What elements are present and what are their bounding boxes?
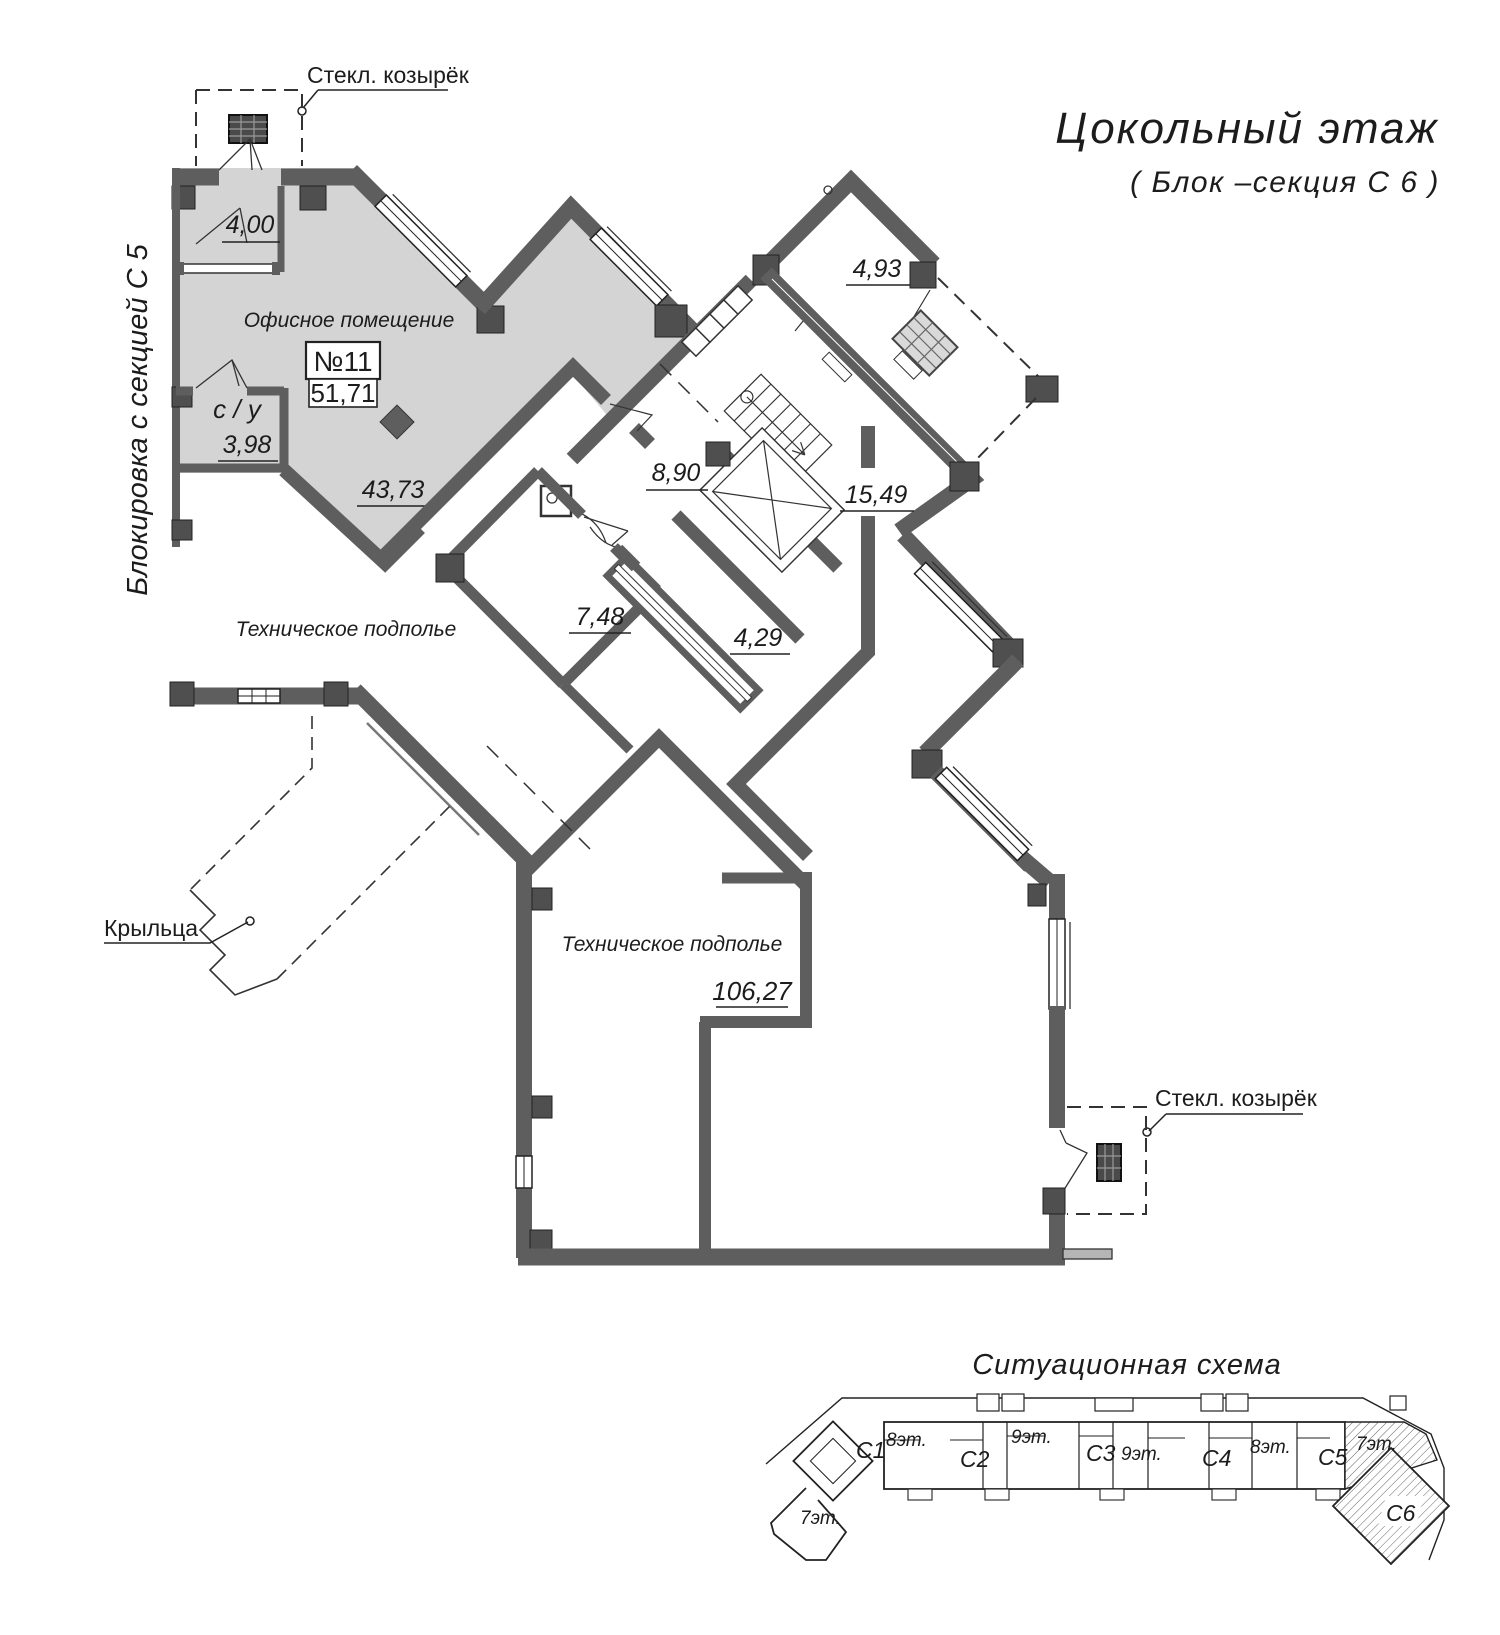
svg-text:С5: С5	[1318, 1444, 1348, 1470]
svg-text:9эт.: 9эт.	[1121, 1444, 1162, 1465]
svg-text:8эт.: 8эт.	[1250, 1437, 1291, 1458]
svg-text:№11: №11	[313, 346, 372, 377]
svg-text:С6: С6	[1386, 1500, 1416, 1526]
svg-text:8,90: 8,90	[652, 459, 701, 487]
svg-text:Офисное помещение: Офисное помещение	[244, 309, 455, 332]
svg-text:С3: С3	[1086, 1440, 1116, 1466]
svg-text:( Блок –секция С 6 ): ( Блок –секция С 6 )	[1130, 166, 1440, 199]
svg-text:7эт.: 7эт.	[800, 1508, 841, 1529]
svg-text:4,29: 4,29	[734, 624, 783, 652]
svg-text:3,98: 3,98	[223, 431, 272, 459]
svg-text:4,93: 4,93	[853, 255, 902, 283]
svg-text:С4: С4	[1202, 1445, 1231, 1471]
svg-text:Техническое подполье: Техническое подполье	[562, 933, 783, 956]
svg-text:Техническое подполье: Техническое подполье	[236, 618, 457, 641]
svg-text:с / у: с / у	[213, 394, 263, 424]
svg-text:Цокольный этаж: Цокольный этаж	[1055, 104, 1438, 153]
svg-text:15,49: 15,49	[845, 481, 908, 509]
svg-text:С2: С2	[960, 1446, 990, 1472]
svg-text:51,71: 51,71	[310, 378, 375, 408]
svg-text:4,00: 4,00	[226, 211, 275, 239]
svg-text:Стекл. козырёк: Стекл. козырёк	[307, 62, 470, 88]
svg-text:106,27: 106,27	[712, 976, 793, 1006]
svg-text:7,48: 7,48	[576, 603, 625, 631]
svg-text:С1: С1	[856, 1437, 885, 1463]
svg-text:Крыльца: Крыльца	[104, 915, 198, 941]
svg-text:Стекл. козырёк: Стекл. козырёк	[1155, 1085, 1318, 1111]
svg-text:Ситуационная схема: Ситуационная схема	[972, 1349, 1282, 1381]
svg-text:9эт.: 9эт.	[1011, 1427, 1052, 1448]
svg-text:7эт.: 7эт.	[1356, 1434, 1397, 1455]
svg-text:43,73: 43,73	[362, 476, 425, 504]
svg-text:Блокировка с секцией С 5: Блокировка с секцией С 5	[122, 243, 154, 595]
svg-text:8эт.: 8эт.	[886, 1430, 927, 1451]
